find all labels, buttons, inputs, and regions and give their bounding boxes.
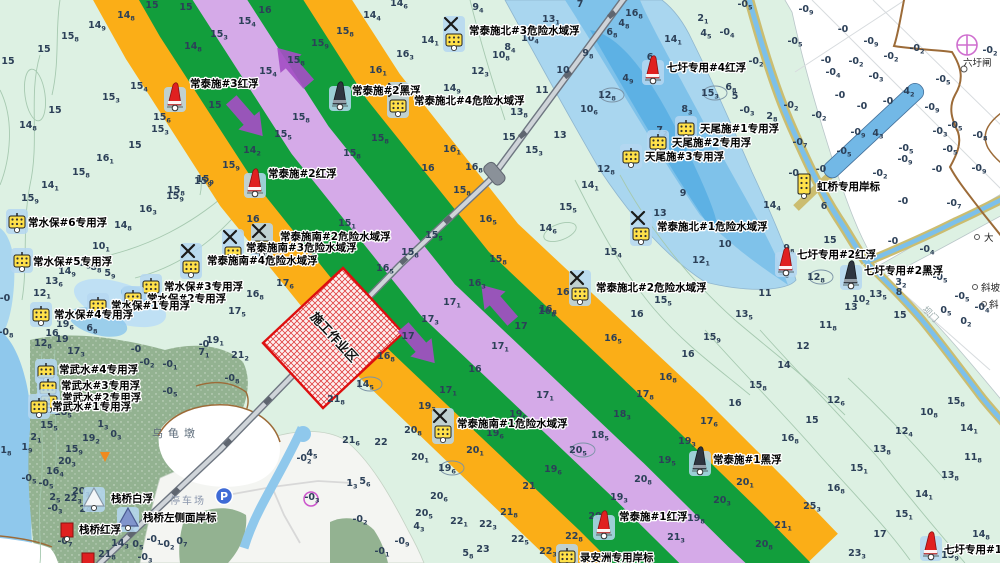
place-label: 大 — [984, 232, 994, 244]
buoy-label: 录安洲专用岸标 — [580, 551, 654, 563]
depth-sounding: 15 — [805, 415, 818, 426]
buoy-label: 天尾施#1专用浮 — [700, 122, 780, 135]
depth-sounding: 15 — [145, 0, 158, 11]
buoy-yellowx — [569, 270, 591, 306]
depth-sounding: 11 — [758, 288, 771, 299]
buoy-black — [689, 447, 711, 476]
buoy-red — [920, 532, 942, 561]
depth-sounding: 7 — [577, 0, 584, 10]
depth-sounding: 15 — [1, 56, 14, 67]
buoy-label: 常泰施南#4危险水域浮 — [207, 254, 318, 267]
buoy-label: 天尾施#2专用浮 — [672, 136, 752, 149]
depth-sounding: -0 — [838, 24, 849, 35]
buoy-label: 常泰施北#4危险水域浮 — [414, 94, 525, 107]
depth-sounding: 15 — [37, 44, 50, 55]
depth-sounding: 16 — [728, 398, 742, 409]
depth-sounding: 9 — [680, 188, 687, 199]
buoy-label: 天尾施#3专用浮 — [645, 150, 725, 163]
depth-sounding: 15 — [208, 100, 221, 111]
place-label: 乌龟墩 — [152, 426, 200, 440]
buoy-label: 常泰施#2红浮 — [268, 167, 337, 180]
buoy-label: 七圩专用#1红浮 — [944, 543, 1000, 556]
depth-sounding: 15 — [179, 2, 192, 13]
buoy-label: 常泰施南#3危险水域浮 — [246, 241, 357, 254]
buoy-label: 常泰施#3红浮 — [190, 77, 259, 90]
buoy-yellow — [28, 394, 50, 419]
depth-sounding: 16 — [258, 5, 272, 16]
buoy-label: 常水保#5专用浮 — [33, 255, 113, 268]
buoy-yellowx — [443, 16, 465, 52]
depth-sounding: 15 — [128, 140, 141, 151]
buoy-label: 常水保#3专用浮 — [164, 280, 244, 293]
buoy-label: 常武水#4专用浮 — [59, 363, 139, 376]
depth-sounding: 13 — [553, 130, 566, 141]
depth-sounding: 10 — [718, 239, 732, 250]
depth-sounding: 16 — [630, 309, 644, 320]
depth-sounding: 16 — [421, 163, 435, 174]
buoy-label: 常泰施#2黑浮 — [352, 84, 421, 97]
place-label: 六圩闸 — [963, 57, 992, 69]
slope-point-icon — [973, 285, 978, 290]
place-label: 停车场 — [170, 494, 206, 507]
buoy-label: 七圩专用#2红浮 — [797, 248, 877, 261]
buoy-red — [593, 511, 615, 540]
buoy-label: 七圩专用#2黑浮 — [864, 264, 944, 277]
depth-sounding: 23 — [476, 544, 489, 555]
buoy-red — [164, 83, 186, 112]
buoy-yellow — [556, 544, 578, 563]
depth-sounding: -0 — [898, 196, 909, 207]
buoy-red — [775, 248, 797, 277]
depth-sounding: -0 — [888, 236, 899, 247]
depth-sounding: 17 — [514, 321, 527, 332]
buoy-red — [642, 56, 664, 85]
buoy-black — [329, 82, 351, 111]
depth-sounding: -0 — [857, 101, 868, 112]
depth-sounding: 13 — [653, 208, 666, 219]
buoy-label: 常泰施北#1危险水域浮 — [657, 220, 768, 233]
buoy-label: 栈桥白浮 — [111, 492, 153, 505]
depth-sounding: 15 — [893, 310, 906, 321]
depth-sounding: 12 — [796, 341, 809, 352]
buoy-black — [840, 261, 862, 290]
depth-sounding: -0 — [821, 55, 832, 66]
buoy-label: 常水保#6专用浮 — [28, 216, 108, 229]
place-label: 斜坡 — [981, 282, 1000, 294]
depth-sounding: 15 — [48, 105, 61, 116]
parking-icon[interactable]: P — [216, 488, 233, 505]
buoy-label: 栈桥左侧面岸标 — [143, 511, 217, 524]
svg-text:P: P — [220, 490, 228, 503]
depth-sounding: 11 — [535, 85, 548, 96]
buoy-label: 常泰施#1红浮 — [619, 510, 688, 523]
buoy-yellow — [11, 248, 33, 273]
depth-sounding: 15 — [502, 132, 515, 143]
buoy-label: 常泰施南#1危险水域浮 — [457, 417, 568, 430]
buoy-label: 七圩专用#4红浮 — [667, 61, 747, 74]
chart-viewport: 施工作业区 P 15151481491581515148154153151481… — [0, 0, 1000, 563]
buoy-label: 虹桥专用岸标 — [817, 180, 880, 193]
place-label: 斜 — [989, 299, 999, 311]
depth-sounding: 16 — [468, 364, 482, 375]
depth-sounding: 14 — [777, 360, 791, 371]
depth-sounding: -0 — [0, 293, 11, 304]
buoy-red-can — [82, 553, 94, 563]
depth-sounding: 5 — [732, 91, 739, 102]
depth-sounding: 21 — [522, 481, 535, 492]
buoy-label: 常水保#4专用浮 — [54, 308, 134, 321]
buoy-yellowx — [180, 243, 202, 279]
depth-sounding: 17 — [401, 331, 414, 342]
depth-sounding: -0 — [131, 344, 142, 355]
creek-pool — [295, 426, 311, 442]
depth-sounding: -0 — [883, 96, 894, 107]
depth-sounding: 19 — [55, 334, 68, 345]
buoy-label: 常武水#1专用浮 — [52, 400, 132, 413]
depth-sounding: 22 — [374, 437, 387, 448]
buoy-yellow — [6, 209, 28, 234]
depth-sounding: -0 — [835, 90, 846, 101]
depth-sounding: 15 — [823, 235, 836, 246]
depth-sounding: 16 — [556, 287, 570, 298]
buoy-label: 常泰施北#2危险水域浮 — [596, 281, 707, 294]
depth-sounding: 6 — [821, 201, 828, 212]
point-feature-icon — [975, 235, 980, 240]
buoy-label: 栈桥红浮 — [79, 523, 121, 536]
depth-sounding: 146 — [390, 0, 408, 11]
buoy-label: 常武水#3专用浮 — [61, 379, 141, 392]
buoy-label: 常泰施北#3危险水域浮 — [469, 24, 580, 37]
nautical-chart-canvas[interactable]: 施工作业区 P 15151481491581515148154153151481… — [0, 0, 1000, 563]
buoy-yellowx — [630, 210, 652, 246]
depth-sounding: 16 — [681, 349, 695, 360]
buoy-red — [244, 169, 266, 198]
depth-sounding: -0 — [816, 164, 827, 175]
depth-sounding: -0 — [932, 164, 943, 175]
depth-sounding: 17 — [873, 529, 886, 540]
buoy-label: 常泰施#1黑浮 — [713, 453, 782, 466]
buoy-white-tri — [83, 487, 105, 512]
buoy-yellow — [30, 302, 52, 327]
buoy-yellow — [620, 144, 642, 169]
buoy-yellowx — [432, 408, 454, 444]
depth-sounding: 10 — [556, 65, 570, 76]
